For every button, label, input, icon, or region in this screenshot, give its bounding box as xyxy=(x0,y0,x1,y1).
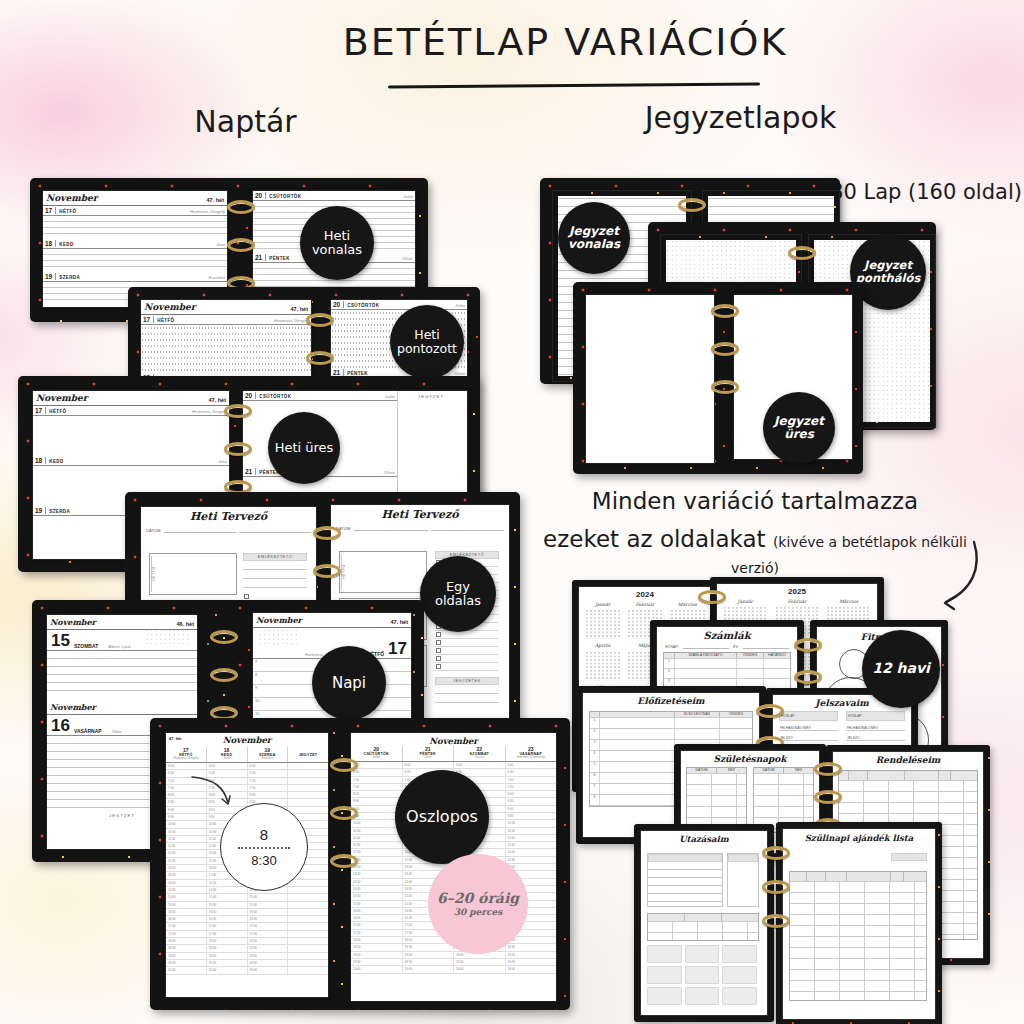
time-slot: 12:30 xyxy=(166,858,206,865)
subscriptions-row: 1 xyxy=(590,718,752,729)
time-slot: 12:00 xyxy=(506,849,557,856)
time-slot: 10:00 xyxy=(166,821,206,828)
date-number: 17 xyxy=(388,640,407,657)
time-slot xyxy=(288,923,328,930)
ruled-area xyxy=(43,216,227,239)
time-slot xyxy=(288,894,328,901)
time-slot: 17:30 xyxy=(248,931,288,938)
time-slot xyxy=(288,967,328,974)
time-slot: 6:30 xyxy=(506,769,557,776)
promo-canvas: BETÉTLAP VARIÁCIÓK Naptár Jegyzetlapok 8… xyxy=(0,0,1024,1024)
badge-time-range: 6–20 óráig 30 perces xyxy=(428,854,528,954)
mini-month: Április xyxy=(583,643,622,681)
time-slot: 10:30 xyxy=(166,829,206,836)
mini-table xyxy=(647,913,759,941)
time-slot: 19:00 xyxy=(207,953,247,960)
time-slot: 17:00 xyxy=(248,923,288,930)
time-slot xyxy=(288,931,328,938)
badge-heti-ures: Heti üres xyxy=(268,412,340,484)
utazasok-page: Utazásaim xyxy=(640,830,768,1016)
time-slot: 8:00 xyxy=(351,791,402,798)
szuletesnapok-title: Születésnapok xyxy=(681,751,819,767)
datum-row: DÁTUM: xyxy=(141,523,316,533)
month-label: November xyxy=(46,193,97,203)
time-slot: 20:00 xyxy=(248,967,288,974)
interval-text: 30 perces xyxy=(454,907,503,918)
time-slot: 19:30 xyxy=(506,959,557,966)
time-slot: 9:30 xyxy=(351,813,402,820)
time-slot xyxy=(288,916,328,923)
time-slot: 15:00 xyxy=(248,894,288,901)
time-slot: 6:00 xyxy=(454,762,505,769)
time-slot: 10:30 xyxy=(506,828,557,835)
jegyzetek-bar: JEGYZETEK xyxy=(435,677,499,685)
heti-tervezo-title: Heti Tervező xyxy=(141,507,316,523)
spread-jegyzet-ures: Jegyzet üres xyxy=(573,282,863,474)
time-slot: 16:00 xyxy=(207,909,247,916)
column-left-page: 47. hét November 17HÉTFŐHortenzia, Gerge… xyxy=(165,732,329,998)
time-slot: 6:00 xyxy=(166,763,206,770)
time-slot: 8:30 xyxy=(351,798,402,805)
monday-box: HÉTFŐ xyxy=(339,551,427,593)
time-slot xyxy=(288,887,328,894)
gift-table xyxy=(789,871,927,1001)
badge-heti-pontozott: Heti pontozott xyxy=(390,305,464,379)
monday-box: HÉTFŐ xyxy=(149,553,237,595)
time-slot xyxy=(288,770,328,777)
badge-12-havi: 12 havi xyxy=(862,630,940,708)
jegyzet-zone: JEGYZET xyxy=(399,394,463,399)
time-slot: 11:00 xyxy=(166,836,206,843)
month-label: November xyxy=(166,733,328,745)
time-slot xyxy=(288,960,328,967)
time-slot: 18:30 xyxy=(506,944,557,951)
mini-month: Január xyxy=(583,602,622,640)
time-slot: 18:30 xyxy=(403,944,454,951)
time-slot: 17:00 xyxy=(351,922,402,929)
time-slot: 7:30 xyxy=(248,785,288,792)
time-slot: 18:00 xyxy=(248,938,288,945)
ruled-area xyxy=(47,651,197,697)
common-note-line2-main: ezeket az oldalakat xyxy=(543,526,766,552)
box-grid xyxy=(647,945,757,1005)
month-label: November xyxy=(351,733,556,746)
bills-row: 2 xyxy=(664,669,790,679)
jegyzet-label: JEGYZET xyxy=(399,394,463,399)
time-slot: 18:30 xyxy=(248,945,288,952)
time-slot: 19:00 xyxy=(248,953,288,960)
szulinapi-title: Szülinapi ajándék lista xyxy=(783,829,935,847)
binder-rings xyxy=(330,758,354,892)
year-label: 2025 xyxy=(717,584,877,599)
page-title: BETÉTLAP VARIÁCIÓK xyxy=(330,20,800,64)
time-slot: 9:00 xyxy=(506,806,557,813)
orders-header-row xyxy=(839,771,977,781)
time-slot: 20:00 xyxy=(506,966,557,973)
time-slot: 19:00 xyxy=(506,952,557,959)
badge-napi: Napi xyxy=(312,646,386,720)
time-slot xyxy=(288,763,328,770)
time-slot: 8:00 xyxy=(248,792,288,799)
time-slot xyxy=(288,938,328,945)
time-slot: 15:30 xyxy=(351,901,402,908)
time-slot: 20:00 xyxy=(351,966,402,973)
password-field: JELSZÓ: xyxy=(846,731,905,741)
time-slot: 17:30 xyxy=(207,931,247,938)
time-slot xyxy=(288,785,328,792)
time-slot: 20:00 xyxy=(207,967,247,974)
time-slot: 17:30 xyxy=(166,931,206,938)
emlekezteto-bar: EMLÉKEZTETŐ xyxy=(243,553,307,561)
time-slot: 9:30 xyxy=(166,814,206,821)
time-slot: 6:00 xyxy=(403,762,454,769)
time-slot: 19:00 xyxy=(351,952,402,959)
time-slot: 15:30 xyxy=(207,902,247,909)
nameday: Ödön xyxy=(112,729,122,734)
time-slot: 6:30 xyxy=(351,769,402,776)
common-note-line1: Minden variáció tartalmazza xyxy=(560,488,950,514)
time-slot: 16:00 xyxy=(166,909,206,916)
password-field: HONLAP: xyxy=(846,711,905,721)
week-label: 47. hét xyxy=(207,197,224,203)
table-grid xyxy=(790,882,926,1000)
column-headers: 20CSÜTÖRTÖKJolán 21PÉNTEKOlivér 22SZOMBA… xyxy=(351,746,556,762)
time-slot xyxy=(288,953,328,960)
time-slot: 18:00 xyxy=(351,937,402,944)
day-row-header: 19SZERDAErzsébet xyxy=(43,272,227,282)
szulinapi-page: Szülinapi ajándék lista xyxy=(782,828,936,1020)
date-number: 16 xyxy=(51,717,70,734)
badge-oszlopos: Oszlopos xyxy=(395,770,489,864)
time-slot xyxy=(288,799,328,806)
szulinapi-sheet: Szülinapi ajándék lista xyxy=(776,822,942,1024)
szamlak-title: Számlák xyxy=(657,627,797,643)
nameday: Albert, Lipót xyxy=(108,644,130,649)
ruled-area xyxy=(648,862,722,904)
time-slot: 16:30 xyxy=(351,915,402,922)
time-slot: 6:00 xyxy=(248,763,288,770)
time-slot: 14:00 xyxy=(166,880,206,887)
time-slot: 8:30 xyxy=(506,798,557,805)
time-slot: 16:30 xyxy=(166,916,206,923)
mini-month-grid xyxy=(585,651,620,681)
time-slot: 13:00 xyxy=(166,865,206,872)
time-slot: 11:00 xyxy=(506,835,557,842)
time-slot: 14:30 xyxy=(166,887,206,894)
time-slot: 18:30 xyxy=(166,945,206,952)
time-slot: 12:30 xyxy=(351,857,402,864)
naptar-heading: Naptár xyxy=(153,104,338,139)
bills-row: 1 xyxy=(664,659,790,669)
time-slot: 13:30 xyxy=(351,871,402,878)
time-slot: 11:30 xyxy=(506,842,557,849)
common-note-line2: ezeket az oldalakat (kivéve a betétlapok… xyxy=(535,526,975,578)
time-column: 6:006:307:007:308:008:309:009:3010:0010:… xyxy=(351,762,403,974)
time-slot xyxy=(288,909,328,916)
time-slot: 15:00 xyxy=(351,893,402,900)
time-slot: 6:00 xyxy=(506,762,557,769)
gift-header-row xyxy=(790,872,926,882)
year-label: 2024 xyxy=(579,587,711,602)
time-slot: 20:00 xyxy=(403,966,454,973)
time-slot: 18:00 xyxy=(166,938,206,945)
time-slot: 9:00 xyxy=(351,806,402,813)
small-box xyxy=(891,853,927,862)
time-slot: 16:30 xyxy=(248,916,288,923)
time-slot: 19:00 xyxy=(166,953,206,960)
utazasok-title: Utazásaim xyxy=(641,831,767,847)
time-slot: 17:00 xyxy=(207,923,247,930)
list-box xyxy=(647,853,723,907)
time-slot xyxy=(288,778,328,785)
time-slot: 19:30 xyxy=(351,959,402,966)
time-slot xyxy=(288,807,328,814)
time-slot: 6:00 xyxy=(351,762,402,769)
time-slot: 7:30 xyxy=(506,784,557,791)
time-slot: 20:00 xyxy=(454,966,505,973)
time-slot: 18:00 xyxy=(207,938,247,945)
time-slot: 19:30 xyxy=(166,960,206,967)
magnifier-circle: 8 8:30 xyxy=(220,803,308,891)
dotted-divider xyxy=(238,847,290,849)
note-page-blank xyxy=(585,294,715,464)
time-slot: 9:30 xyxy=(506,813,557,820)
time-slot: 14:00 xyxy=(351,879,402,886)
spread-oszlopos: 47. hét November 17HÉTFŐHortenzia, Gerge… xyxy=(150,718,570,1010)
time-slot: 19:30 xyxy=(248,960,288,967)
badge-egy-oldalas: Egy oldalas xyxy=(420,556,496,632)
datum-row: DÁTUM: xyxy=(331,521,509,531)
capacity-text: 80 Lap (160 oldal) xyxy=(828,180,1024,204)
time-slot: 19:30 xyxy=(454,959,505,966)
blank-area xyxy=(33,416,229,456)
time-slot: 16:00 xyxy=(248,909,288,916)
time-slot: 14:30 xyxy=(351,886,402,893)
jegyzetlapok-heading: Jegyzetlapok xyxy=(633,100,848,135)
side-box xyxy=(727,853,759,907)
badge-jegyz-ures: Jegyzet üres xyxy=(763,392,835,464)
heti-tervezo-title: Heti Tervező xyxy=(331,505,509,521)
time-slot xyxy=(288,792,328,799)
time-slot: 19:30 xyxy=(207,960,247,967)
time-slot xyxy=(288,902,328,909)
title-underline xyxy=(388,82,760,88)
date-number: 15 xyxy=(51,632,70,649)
time-slot: 11:30 xyxy=(166,843,206,850)
day-row-header: 18KEDDJenő xyxy=(43,239,227,249)
day-name: SZOMBAT xyxy=(74,643,98,649)
ruled-area xyxy=(43,249,227,272)
time-slot: 16:30 xyxy=(207,916,247,923)
utazasok-sheet: Utazásaim xyxy=(634,824,774,1022)
curved-arrow-icon xyxy=(916,538,982,618)
time-slot: 13:30 xyxy=(166,872,206,879)
dotted-area xyxy=(141,325,311,373)
binder-rings xyxy=(762,846,786,952)
badge-jegyz-vonalas: Jegyzet vonalas xyxy=(558,202,630,274)
time-slot: 12:00 xyxy=(166,850,206,857)
time-slot: 20:00 xyxy=(166,967,206,974)
time-slot: 15:30 xyxy=(166,902,206,909)
password-field: FELHASZNÁLÓNÉV: xyxy=(846,721,905,731)
subscriptions-row: 2 xyxy=(590,729,752,740)
day-name: VASÁRNAP xyxy=(74,728,102,734)
mini-dot-grid xyxy=(145,628,189,644)
column-headers: 17HÉTFŐHortenzia, Gergely 18KEDDJenő 19S… xyxy=(166,747,328,763)
page-header: November 47. hét xyxy=(43,191,227,206)
time-slot: 7:00 xyxy=(506,777,557,784)
time-slot xyxy=(288,880,328,887)
time-slot: 6:00 xyxy=(207,763,247,770)
mini-month-grid xyxy=(585,609,620,639)
week-label: 47. hét xyxy=(169,736,182,741)
time-slot: 8:00 xyxy=(506,791,557,798)
time-slot: 18:30 xyxy=(207,945,247,952)
time-slot: 10:30 xyxy=(351,828,402,835)
time-slot: 19:00 xyxy=(403,952,454,959)
time-slot: 7:00 xyxy=(248,778,288,785)
time-slot: 16:00 xyxy=(351,908,402,915)
time-slot: 17:00 xyxy=(166,923,206,930)
time-slot: 10:00 xyxy=(506,820,557,827)
elofizetesek-title: Előfizetéseim xyxy=(583,693,759,709)
time-slot: 7:30 xyxy=(351,784,402,791)
password-field: JELSZÓ: xyxy=(779,731,838,741)
rendelesek-title: Rendeléseim xyxy=(833,752,983,768)
time-slot: 19:30 xyxy=(403,959,454,966)
day-row-header: 20CSÜTÖRTÖKJolán xyxy=(253,191,415,201)
time-range-text: 6–20 óráig xyxy=(437,890,519,907)
hand-arrow-icon xyxy=(188,773,232,813)
time-slot: 12:00 xyxy=(351,849,402,856)
time-slot: 15:00 xyxy=(166,894,206,901)
password-field: FELHASZNÁLÓNÉV: xyxy=(779,721,838,731)
mini-dot-grid xyxy=(258,628,298,646)
time-slot: 15:30 xyxy=(248,902,288,909)
month-year-row: HÓNAP: ÉV: xyxy=(657,643,797,652)
time-slot: 11:30 xyxy=(351,842,402,849)
time-slot: 12:30 xyxy=(506,857,557,864)
time-slot: 17:30 xyxy=(351,930,402,937)
time-slot: 6:30 xyxy=(248,770,288,777)
time-slot: 7:00 xyxy=(351,777,402,784)
magnifier-time-top: 8 xyxy=(260,826,268,843)
badge-heti-vonalas: Heti vonalas xyxy=(300,206,374,280)
time-slot: 14:30 xyxy=(207,887,247,894)
time-slot: 10:00 xyxy=(351,820,402,827)
time-slot: 15:00 xyxy=(207,894,247,901)
magnifier-time-bottom: 8:30 xyxy=(251,853,276,868)
table-grid xyxy=(648,922,758,940)
time-slot: 13:00 xyxy=(351,864,402,871)
time-slot: 18:30 xyxy=(351,944,402,951)
time-slot xyxy=(288,945,328,952)
binder-rings xyxy=(711,304,735,418)
password-field: HONLAP: xyxy=(779,711,838,721)
time-slot: 11:00 xyxy=(351,835,402,842)
day-row-header: 17HÉTFŐHortenzia, Gergely xyxy=(43,206,227,216)
